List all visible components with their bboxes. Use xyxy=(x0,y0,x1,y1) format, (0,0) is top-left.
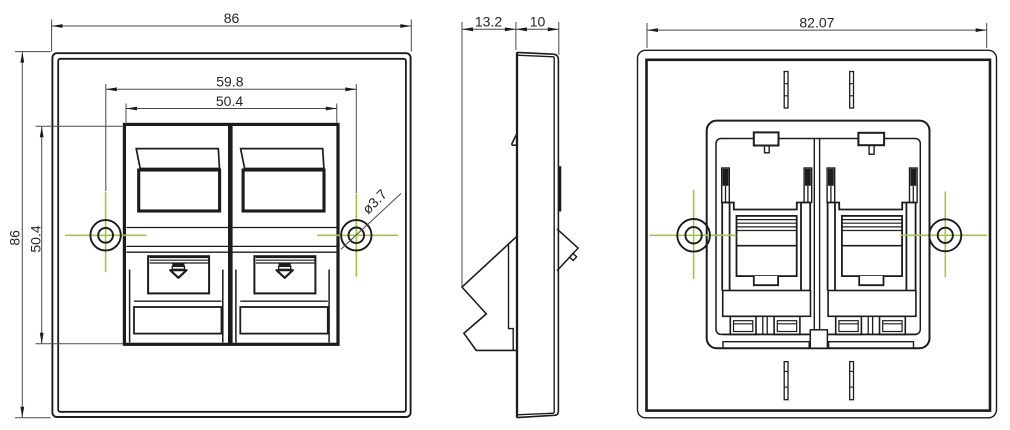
svg-text:13.2: 13.2 xyxy=(475,14,502,30)
svg-text:59.8: 59.8 xyxy=(216,74,243,90)
svg-text:86: 86 xyxy=(224,10,240,26)
svg-text:50.4: 50.4 xyxy=(216,93,243,109)
svg-text:50.4: 50.4 xyxy=(27,225,43,252)
svg-text:82.07: 82.07 xyxy=(799,14,834,30)
svg-text:10: 10 xyxy=(530,14,546,30)
svg-text:86: 86 xyxy=(6,230,22,246)
